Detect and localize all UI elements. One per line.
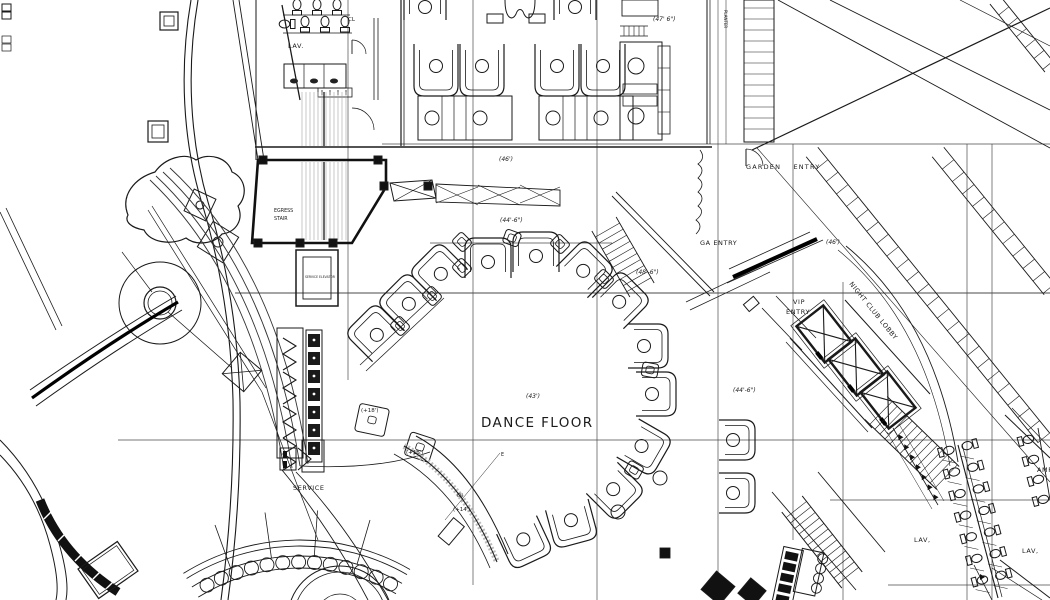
escalator-ladder <box>1003 234 1015 243</box>
circle <box>313 429 316 432</box>
path <box>719 473 755 513</box>
path <box>504 523 546 562</box>
escalator-ladder <box>897 259 909 268</box>
label-dance-floor: DANCE FLOOR <box>481 415 594 431</box>
label-amphitheater: AMPH <box>1037 466 1050 474</box>
circle <box>313 447 316 450</box>
rect <box>1027 477 1034 487</box>
toilet-fixture <box>972 482 990 495</box>
scallop-booth <box>200 578 214 592</box>
stair-treads <box>795 512 815 528</box>
scallop-booth <box>354 565 368 579</box>
radial-line <box>314 511 317 557</box>
escalator-ladder <box>983 209 995 218</box>
line <box>233 0 258 160</box>
rect <box>977 460 984 470</box>
booth <box>535 44 579 96</box>
rect <box>293 11 302 16</box>
line <box>148 210 262 392</box>
scallop-booth <box>369 570 383 584</box>
dark-shaft <box>738 578 766 600</box>
escalator-ladder <box>806 157 1038 443</box>
toilet-fixture <box>989 547 1007 560</box>
booth <box>628 324 668 368</box>
booth-table <box>604 480 622 498</box>
path <box>0 440 67 600</box>
line <box>953 503 967 506</box>
booth <box>586 462 645 521</box>
escalator-ladder <box>887 247 899 256</box>
path <box>586 462 645 521</box>
path <box>30 296 176 390</box>
booth-table <box>368 326 386 344</box>
line <box>0 212 56 330</box>
column-marker <box>374 156 382 164</box>
escalator-ladder <box>962 185 974 194</box>
scallop-booth <box>244 561 258 575</box>
toilet-fixture <box>960 531 978 544</box>
label-planter: PLANTER <box>723 10 728 28</box>
planter-edge <box>696 150 703 234</box>
path <box>410 0 441 14</box>
rect <box>943 469 950 479</box>
dining-booths <box>404 0 670 140</box>
rect <box>418 96 512 140</box>
toilet-fixture <box>938 445 956 458</box>
label-dim-44-6-top: (44'-6") <box>500 217 523 224</box>
door-swing <box>352 40 366 54</box>
rect <box>623 84 657 94</box>
toilet-fixture <box>313 0 322 15</box>
booth <box>460 44 504 96</box>
rect <box>744 0 774 142</box>
path <box>546 499 599 549</box>
booth-table <box>574 262 592 280</box>
label-lav-top: LAV. <box>288 42 304 50</box>
escalator-ladder <box>1043 61 1050 69</box>
escalator-ladder <box>927 296 939 305</box>
tilted-table <box>197 221 238 262</box>
label-dim-46-top: (46') <box>499 156 513 163</box>
rect <box>960 534 967 544</box>
escalator-ladder <box>944 147 1050 285</box>
label-lav-right: LAV, <box>1022 547 1039 555</box>
line <box>778 0 1050 148</box>
line <box>1005 415 1050 458</box>
rect <box>291 20 296 29</box>
path <box>725 479 749 508</box>
sink-fixture <box>290 79 298 84</box>
scallop-booth <box>276 556 290 570</box>
column-marker <box>424 182 432 190</box>
toilet-fixture <box>961 439 979 452</box>
rect <box>620 42 662 140</box>
misc-fixtures <box>660 472 885 600</box>
escalator-ladder <box>942 160 954 169</box>
line <box>860 371 915 428</box>
table-pod <box>641 362 659 379</box>
tilted-table <box>184 189 216 221</box>
rect <box>784 551 798 562</box>
line <box>828 338 883 395</box>
rect <box>313 11 322 16</box>
table-pod <box>451 257 472 278</box>
rect <box>487 14 503 23</box>
label-dim-44-6-mid: (44'-6") <box>733 387 756 394</box>
label-dim-46-entry: (46') <box>826 239 840 246</box>
circle <box>313 375 316 378</box>
booth-table <box>515 531 532 548</box>
escalator-ladder <box>973 197 985 206</box>
label-dim-48-6: (48'-6") <box>636 269 659 276</box>
dark-shaft <box>701 571 735 600</box>
sink-fixture <box>310 79 318 84</box>
stair-treads <box>865 419 937 489</box>
line <box>959 525 973 528</box>
escalator-ladder <box>937 309 949 318</box>
path <box>420 50 453 90</box>
escalator-ladder <box>846 197 858 206</box>
line <box>1038 428 1050 500</box>
line <box>1012 408 1050 448</box>
circle <box>313 411 316 414</box>
circle <box>313 339 316 342</box>
floor-plan-canvas: LAV. CL PLANTER (47' 6") (46') GARDEN EN… <box>0 0 1050 600</box>
scallop-booth <box>384 577 398 591</box>
label-p18-west: (+18') <box>361 408 378 414</box>
rect <box>1017 437 1024 447</box>
sink-fixture <box>330 79 338 84</box>
path <box>352 310 395 353</box>
rect <box>701 571 735 600</box>
label-dj: DJ <box>457 493 463 499</box>
path <box>634 330 662 363</box>
ga-ramp <box>733 239 817 277</box>
rect <box>451 257 472 278</box>
circle <box>594 111 608 125</box>
label-keynote-e: E <box>501 452 504 458</box>
column-marker <box>329 239 337 247</box>
rect <box>780 573 794 584</box>
column-marker <box>254 239 262 247</box>
booth-table <box>551 60 564 73</box>
booth-table <box>569 1 582 14</box>
line <box>6 208 62 326</box>
radial-line <box>357 520 370 564</box>
scallop-booth <box>323 557 337 571</box>
circle <box>316 594 364 600</box>
escalator-ladder <box>993 222 1005 231</box>
rect <box>775 594 789 600</box>
toilet-fixture <box>333 0 342 15</box>
toilet-fixture <box>978 503 996 516</box>
booth <box>581 44 625 96</box>
circle <box>628 108 644 124</box>
queue-arrow <box>934 494 939 500</box>
escalator-ladder <box>857 209 869 218</box>
queue-arrow <box>898 434 903 440</box>
booth <box>554 0 596 20</box>
circle <box>313 393 316 396</box>
rect <box>971 577 978 587</box>
escalator-ladder <box>999 7 1009 15</box>
rect <box>994 525 1001 535</box>
label-p18-dj: (+18') <box>406 450 423 456</box>
stair-treads <box>790 507 810 523</box>
rect <box>1032 497 1039 507</box>
egress-stair <box>252 156 432 306</box>
rect <box>367 416 376 425</box>
booth-table <box>530 250 543 263</box>
rect <box>660 548 670 558</box>
booth-table <box>400 295 418 313</box>
label-p14-dj: (+14') <box>453 507 470 513</box>
booth-table <box>638 340 651 353</box>
label-vip-1: VIP <box>793 298 805 306</box>
booth-table <box>419 1 432 14</box>
rect <box>539 96 633 140</box>
escalator-ladder <box>998 383 1010 392</box>
path <box>564 246 607 289</box>
label-closet: CL <box>348 17 356 23</box>
circle <box>628 58 644 74</box>
circle <box>546 111 560 125</box>
rect <box>529 14 545 23</box>
amphitheater-arc <box>187 546 407 579</box>
escalator-ladder <box>1033 272 1045 281</box>
escalator-ladder <box>952 172 964 181</box>
line <box>122 252 152 292</box>
rect <box>2 12 11 19</box>
toilet-fixture <box>966 553 984 566</box>
escalator-ladder <box>1023 259 1035 268</box>
rect <box>2 4 11 11</box>
toilet-fixture <box>321 16 330 32</box>
booth <box>556 238 615 297</box>
line <box>752 8 1050 150</box>
rect <box>333 11 342 16</box>
escalator-ladder <box>836 185 848 194</box>
escalator-ladder <box>826 172 838 181</box>
rect <box>777 583 791 594</box>
rect <box>555 239 566 250</box>
dance-floor-booth-ring <box>344 229 755 571</box>
label-lav-left: LAV, <box>914 536 931 544</box>
line <box>152 206 266 388</box>
path <box>404 0 446 20</box>
line <box>478 187 520 203</box>
stair-treads <box>606 241 630 255</box>
path <box>587 50 620 90</box>
booth <box>636 372 676 416</box>
escalator-ladder <box>867 222 879 231</box>
circle <box>425 111 439 125</box>
rect <box>197 221 238 262</box>
escalator-ladder <box>947 321 959 330</box>
banquette <box>283 338 296 370</box>
structural-grid <box>118 0 1050 600</box>
booth-table <box>597 60 610 73</box>
rect <box>1005 568 1012 578</box>
rect <box>321 28 330 33</box>
stair-treads <box>602 235 626 249</box>
dark-stair <box>40 500 118 592</box>
rect <box>622 0 658 16</box>
scallop-booth <box>292 555 306 569</box>
stair-treads <box>830 556 850 572</box>
booth-table <box>610 293 628 311</box>
escalator-ladder <box>932 157 1044 295</box>
escalator-ladder <box>988 371 1000 380</box>
circle <box>473 111 487 125</box>
rect <box>283 461 287 468</box>
booth-table <box>727 487 740 500</box>
label-ga-entry: GA ENTRY <box>700 239 737 247</box>
rect <box>451 231 472 252</box>
column-marker <box>380 182 388 190</box>
toilet-fixture <box>967 460 985 473</box>
podium <box>743 296 759 311</box>
line <box>899 424 944 501</box>
lavatory-bank-southeast <box>887 408 1050 600</box>
rect <box>738 578 766 600</box>
column-marker <box>296 239 304 247</box>
rect <box>743 296 759 311</box>
booth <box>465 238 511 278</box>
stair-treads <box>799 518 819 534</box>
line <box>818 472 885 552</box>
toilet-fixture <box>293 0 302 15</box>
rect <box>184 189 216 221</box>
escalator-ladder <box>907 272 919 281</box>
escalator-ladder <box>917 284 929 293</box>
rect <box>283 451 287 458</box>
line <box>612 196 710 296</box>
path <box>436 184 560 206</box>
booth <box>546 499 599 549</box>
stair-treads <box>900 431 922 454</box>
path <box>497 516 554 571</box>
booth-table <box>476 60 489 73</box>
escalator-ladder <box>1000 0 1050 64</box>
rect <box>2 36 11 43</box>
line <box>239 0 264 160</box>
path <box>466 50 499 90</box>
amphitheater-arc <box>198 568 396 597</box>
path <box>471 244 506 272</box>
stair-treads <box>613 253 637 267</box>
rect <box>1022 457 1029 467</box>
label-service-elevator: SERVICE ELEVATOR <box>305 275 336 279</box>
toilet-fixture <box>949 488 967 501</box>
circle <box>653 471 667 485</box>
rect <box>623 96 657 106</box>
line <box>964 546 978 549</box>
escalator-ladder <box>1008 396 1020 405</box>
rect <box>164 16 174 26</box>
rect <box>954 512 961 522</box>
escalator-ladder <box>877 234 889 243</box>
booth-table <box>430 60 443 73</box>
restroom-block <box>279 0 378 146</box>
rect <box>148 121 168 142</box>
path <box>519 238 554 266</box>
scallop-booth <box>308 556 322 570</box>
stair-treads <box>609 247 633 261</box>
rect <box>966 556 973 566</box>
rect <box>1000 547 1007 557</box>
scallop-booth <box>214 571 228 585</box>
escalator-ladder <box>1025 39 1035 47</box>
label-service: SERVICE <box>293 484 325 492</box>
rect <box>782 562 796 573</box>
line <box>727 240 823 283</box>
floor-plan-drawing: LAV. CL PLANTER (47' 6") (46') GARDEN EN… <box>0 0 1050 600</box>
path <box>541 50 574 90</box>
circle <box>313 357 316 360</box>
rect <box>160 12 178 30</box>
rect <box>641 362 659 379</box>
booth-table <box>646 388 659 401</box>
queue-arrow <box>980 574 985 580</box>
door-swing <box>352 108 374 130</box>
rect <box>438 518 464 545</box>
rect <box>949 491 956 501</box>
booth-table <box>563 512 579 528</box>
booth-table <box>482 256 495 269</box>
label-vip-2: ENTRY <box>786 308 810 316</box>
stair-treads <box>825 551 845 567</box>
escalator-ladder <box>967 346 979 355</box>
dj-console <box>438 518 464 545</box>
line <box>436 187 478 203</box>
curved-wall <box>191 0 240 600</box>
label-dim-43: (43') <box>526 393 540 400</box>
booth-table <box>432 265 450 283</box>
booth <box>414 44 458 96</box>
stair-treads <box>599 229 623 243</box>
scallop-booth <box>260 558 274 572</box>
label-garden-entry: GARDEN ENTRY <box>746 163 820 171</box>
stair-treads <box>802 496 862 572</box>
stair-treads <box>595 223 619 237</box>
line <box>1000 560 1050 598</box>
line <box>729 232 810 269</box>
table-pod <box>451 231 472 252</box>
rect <box>301 28 310 33</box>
toilet-fixture <box>279 20 295 29</box>
booth <box>719 473 755 513</box>
rect <box>645 366 654 374</box>
path <box>554 0 596 20</box>
column-marker <box>259 156 267 164</box>
escalator-ladder <box>1034 50 1044 58</box>
line <box>790 338 872 428</box>
booth <box>513 232 559 272</box>
escalator-ladder <box>1043 284 1050 293</box>
booth <box>404 0 446 20</box>
escalator-ladder <box>1013 247 1025 256</box>
path <box>556 238 615 297</box>
path <box>36 310 182 406</box>
toilet-fixture <box>301 16 310 32</box>
path <box>552 506 591 542</box>
stair-treads <box>910 440 932 463</box>
label-egress-2: STAIR <box>274 216 288 222</box>
rect <box>983 482 990 492</box>
table-pod <box>549 233 570 254</box>
line <box>948 482 962 485</box>
